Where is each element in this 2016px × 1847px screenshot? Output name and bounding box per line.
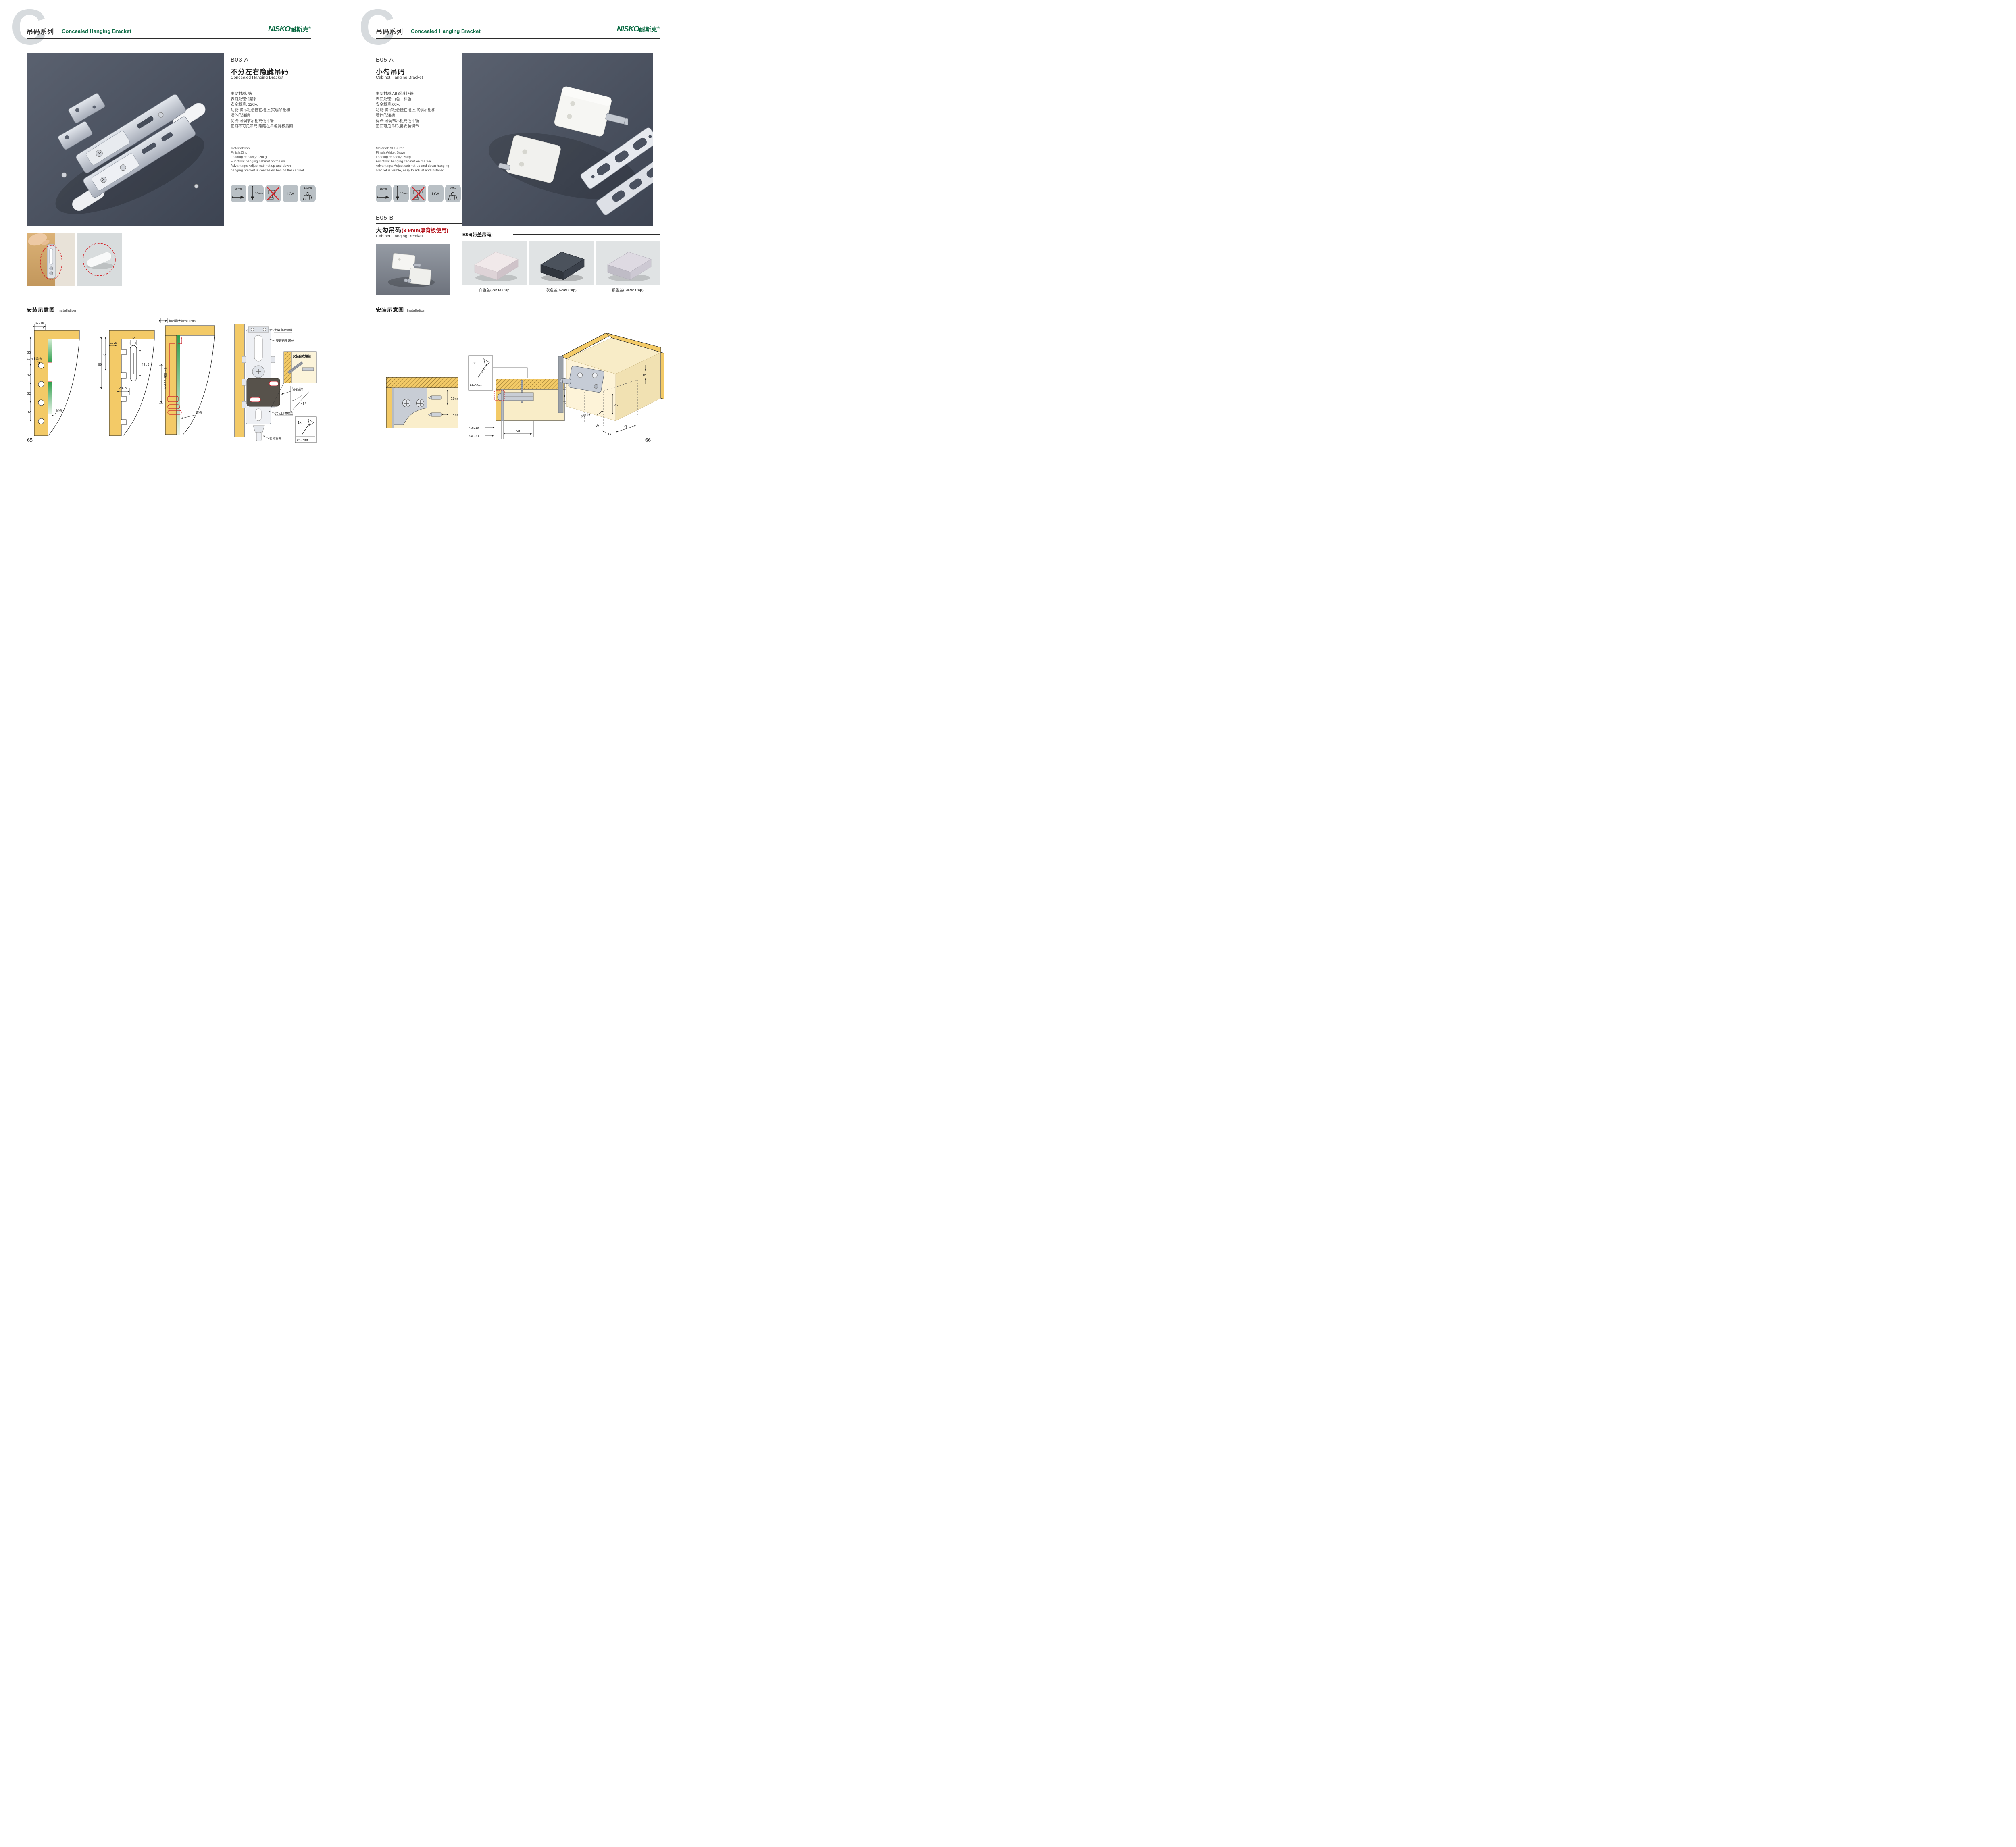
width-adjust-icon: 10mm <box>231 185 246 202</box>
dim-label: 42 <box>614 404 619 407</box>
product-name-en: Cabinet Hanging Brcaket <box>376 234 423 239</box>
install-diagram-side-holes: 16-18 5 35 32 32 32 10-4个均布 背板 <box>27 320 87 439</box>
height-adjust-icon: 10mm <box>248 185 264 202</box>
note-label: 背板 <box>56 408 62 412</box>
dim-label: 15mm <box>451 413 458 417</box>
product-photo-b05a <box>462 53 653 226</box>
dim-label: 35 <box>103 353 107 357</box>
cap-label: 灰色盖(Gray Cap) <box>529 287 594 293</box>
spec-line: Finish:Zinc <box>231 150 304 155</box>
icon-label: 15mm <box>376 188 392 191</box>
lga-cert-icon: LGA <box>428 185 444 202</box>
series-title-zh: 吊码系列 <box>376 26 403 36</box>
dim-label: 32 <box>27 392 31 395</box>
brand-logo-latin: NISKO <box>617 25 639 33</box>
brand-logo: NISKO耐斯克® <box>252 25 311 34</box>
product-name-line: 大勾吊码(3-9mm厚背板使用) <box>376 226 448 234</box>
brand-logo-zh: 耐斯克 <box>639 26 657 33</box>
cap-photo-white <box>462 241 527 285</box>
note-label: 前后最大调节10mm <box>169 319 196 323</box>
spec-line: Advantage: Adjust cabinet up and down ha… <box>376 164 449 168</box>
spec-line: 墙体的连接 <box>231 113 293 119</box>
header-divider <box>58 27 58 35</box>
no-drill-icon <box>265 185 281 202</box>
metal-hook <box>407 279 411 283</box>
note-label: 锁紧状态 <box>269 437 281 441</box>
install-diagram-slot-dims: 60 35 12.5 12 42.5 20.5 <box>98 320 158 439</box>
cap-photo-gray <box>529 241 594 285</box>
lga-cert-icon: LGA <box>283 185 298 202</box>
height-adjust-icon: 10mm <box>393 185 409 202</box>
load-capacity-icon: 60Kg <box>445 185 461 202</box>
dim-label: 60 <box>98 363 102 366</box>
dim-label: 32 <box>27 373 31 377</box>
page-number-right: 66 <box>645 437 651 444</box>
b06-title: B06(带盖吊码) <box>462 231 493 238</box>
spec-line: Material: ABS+Iron <box>376 146 449 150</box>
cap-photo-silver <box>596 241 660 285</box>
dim-label: 17 <box>608 433 612 436</box>
header-rule <box>27 38 311 39</box>
thumb-cap-photo <box>77 233 122 286</box>
note-label: 10-4个均布 <box>27 356 42 360</box>
spec-line: 墙体的连接 <box>376 113 435 119</box>
installation-title-zh: 安装示意图 <box>376 306 404 313</box>
note-label: 安装自攻螺丝 <box>276 339 294 343</box>
icon-label: 10mm <box>400 192 408 195</box>
series-title-zh: 吊码系列 <box>27 26 54 36</box>
header-divider <box>407 27 407 35</box>
series-title-en: Concealed Hanging Bracket <box>62 28 131 34</box>
page-header-left: 吊码系列 Concealed Hanging Bracket <box>27 26 131 36</box>
dim-label: Φ3.5mm <box>297 438 308 442</box>
install-diagram-section-dims: 2x Φ4×30mm 18 MIN.10 MAX.23 58 <box>467 354 570 441</box>
spec-line: Advantage: Adjust cabinet up and down <box>231 164 304 168</box>
product-code: B05-A <box>376 56 394 63</box>
dim-label: 1x <box>298 421 302 424</box>
spec-line: Loading capacity: 60kg <box>376 155 449 159</box>
spec-line: Material:Iron <box>231 146 304 150</box>
spec-line: 功能:将吊柜悬挂在墙上,实现吊柜和 <box>376 108 435 113</box>
installation-title-en: Installation <box>407 308 425 313</box>
brand-logo: NISKO耐斯克® <box>601 25 660 34</box>
section-bottom-rule <box>462 297 660 297</box>
note-label: 安装自攻螺丝 <box>274 328 292 332</box>
dim-label: Φ4×30mm <box>470 384 482 387</box>
header-rule <box>376 38 660 39</box>
dim-label: 10mm <box>451 397 458 401</box>
specs-en: Material:Iron Finish:Zinc Loading capaci… <box>231 146 304 173</box>
dim-label: 20.5 <box>119 386 127 390</box>
product-code: B03-A <box>231 56 248 63</box>
specs-zh: 主要材质: 铁 表面处理: 镀锌 安全载重: 120kg 功能:将吊柜悬挂在墙上… <box>231 91 293 129</box>
product-name-en: Concealed Hanging Bracket <box>231 75 283 80</box>
install-diagram-bracket-detail: 安装自攻螺丝 安装自攻螺丝 安装自攻螺丝 专用挂片 锁紧状态 安装自攻螺丝 45… <box>223 318 319 451</box>
dim-label: 16 <box>642 373 646 377</box>
dim-label: 32 <box>27 410 31 414</box>
dim-label: 45° <box>301 402 306 406</box>
spec-line: 主要材质: 铁 <box>231 91 293 97</box>
dim-label: 12 <box>131 336 135 340</box>
spec-line: 主要材质:ABS塑料+铁 <box>376 91 435 97</box>
dim-label: 35 <box>27 351 31 354</box>
registered-mark: ® <box>657 26 660 30</box>
cap-label: 白色盖(White Cap) <box>462 287 527 293</box>
spec-line: 表面处理: 镀锌 <box>231 97 293 102</box>
section-rule <box>513 234 660 235</box>
icon-label: 10mm <box>231 188 246 191</box>
series-title-en: Concealed Hanging Bracket <box>411 28 481 34</box>
spec-line: Function: hanging cabinet on the wall <box>231 159 304 164</box>
cap-label: 银色盖(Silver Cap) <box>596 287 660 293</box>
product-code: B05-B <box>376 214 394 221</box>
spec-line: Loading capacity:120kg <box>231 155 304 159</box>
product-photo-b05b <box>376 244 450 295</box>
spec-line: bracket is visible, easy to adjust and i… <box>376 168 449 173</box>
load-capacity-icon: 120Kg <box>300 185 316 202</box>
install-diagram-isometric: 16 42 RMAX4 16 17 32 <box>558 331 665 440</box>
note-label: 安装自攻螺丝 <box>293 354 311 358</box>
loose-screw <box>62 173 67 177</box>
registered-mark: ® <box>308 26 311 30</box>
product-photo-b03a <box>27 53 224 226</box>
spec-line: 功能:将吊柜悬挂在墙上,实现吊柜和 <box>231 108 293 113</box>
product-name-note: (3-9mm厚背板使用) <box>402 227 448 233</box>
specs-zh: 主要材质:ABS塑料+铁 表面处理:白色、棕色 安全载重:60kg 功能:将吊柜… <box>376 91 435 129</box>
specs-en: Material: ABS+Iron Finish:White, Brown L… <box>376 146 449 173</box>
loose-screw <box>194 184 198 188</box>
product-name-zh: 大勾吊码 <box>376 227 402 234</box>
spec-line: hanging bracket is concealed behind the … <box>231 168 304 173</box>
feature-icons-b03a: 10mm 10mm LGA 120Kg <box>231 185 316 202</box>
page-number-left: 65 <box>27 437 33 444</box>
installation-title-en: Installation <box>58 308 76 313</box>
spec-line: Function: hanging cabinet on the wall <box>376 159 449 164</box>
dim-label: 12.5 <box>110 341 117 345</box>
install-diagram-adjust-screws: 10mm 15mm <box>384 374 467 431</box>
spec-line: 安全载重:60kg <box>376 102 435 108</box>
spec-line: 安全载重: 120kg <box>231 102 293 108</box>
dim-label: 16 <box>595 424 600 428</box>
icon-label: 120Kg <box>300 187 316 189</box>
spec-line: 正面可见吊码,易安装调节 <box>376 124 435 129</box>
feature-icons-b05a: 15mm 10mm LGA 60Kg <box>376 185 461 202</box>
dim-label: MIN.10 <box>469 426 479 430</box>
brand-logo-zh: 耐斯克 <box>290 26 308 33</box>
width-adjust-icon: 15mm <box>376 185 392 202</box>
product-name-en: Cabinet Hanging Bracket <box>376 75 423 80</box>
page-header-right: 吊码系列 Concealed Hanging Bracket <box>376 26 481 36</box>
note-label: 专用挂片 <box>291 387 303 391</box>
note-label: 安装自攻螺丝 <box>275 411 293 415</box>
section-rule <box>376 223 462 224</box>
dim-label: 2x <box>472 362 476 365</box>
dim-label: 42.5 <box>142 363 149 366</box>
thumb-install-photo <box>27 233 75 286</box>
icon-label: LGA <box>428 192 444 196</box>
installation-title-zh: 安装示意图 <box>27 306 55 313</box>
note-label: 背板 <box>196 410 202 414</box>
dim-label: RMAX4 <box>580 412 591 418</box>
installation-title-right: 安装示意图 Installation <box>376 306 425 313</box>
no-drill-icon <box>410 185 426 202</box>
catalog-spread: C 吊码系列 Concealed Hanging Bracket NISKO耐斯… <box>0 0 676 462</box>
spec-line: Finish:White, Brown <box>376 150 449 155</box>
brand-logo-latin: NISKO <box>268 25 290 33</box>
installation-title-left: 安装示意图 Installation <box>27 306 76 313</box>
icon-label: 60Kg <box>445 187 461 189</box>
spec-line: 正面不可见吊码,隐藏在吊柜背板后面 <box>231 124 293 129</box>
dim-label: 5 <box>43 327 44 330</box>
vertical-note-adjust: 上下调节10mm <box>163 366 167 406</box>
spec-line: 优点:可调节吊柜高低平衡 <box>231 119 293 124</box>
icon-label: LGA <box>283 192 298 196</box>
spec-line: 表面处理:白色、棕色 <box>376 97 435 102</box>
dim-label: MAX.23 <box>469 435 479 438</box>
metal-hook <box>413 264 421 267</box>
icon-label: 10mm <box>255 192 263 195</box>
dim-label: 58 <box>516 429 520 433</box>
dim-label: 16-18 <box>34 322 44 325</box>
spec-line: 优点:可调节吊柜高低平衡 <box>376 119 435 124</box>
